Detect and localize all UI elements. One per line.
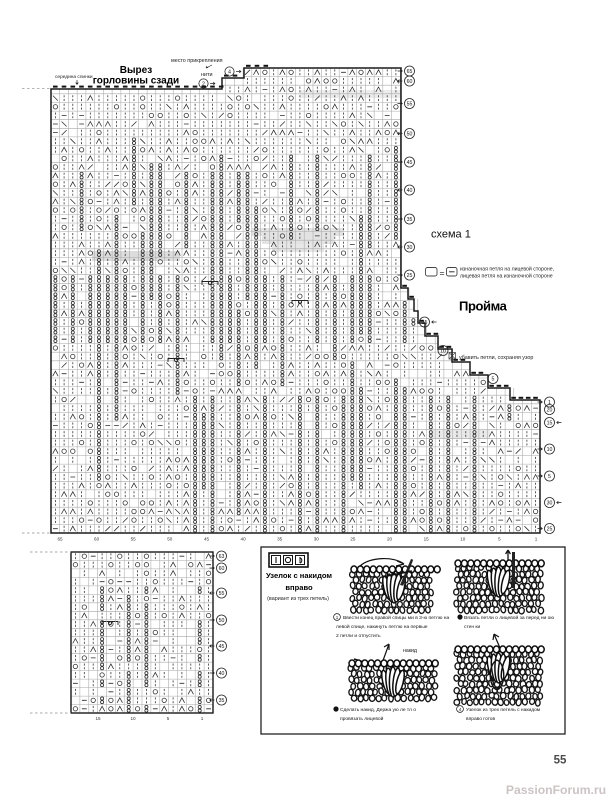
svg-text:60: 60 [219, 566, 225, 572]
svg-text:вправо готов: вправо готов [466, 717, 496, 722]
svg-text:15: 15 [547, 420, 553, 426]
svg-text:Вязать петли о лицевой за пер: Вязать петли о лицевой за перед ни ою [464, 614, 554, 621]
svg-text:2: 2 [202, 81, 205, 87]
svg-text:PassionForum.ru: PassionForum.ru [506, 783, 606, 797]
svg-text:20: 20 [387, 537, 393, 542]
svg-text:50: 50 [219, 618, 225, 624]
svg-text:схема 1: схема 1 [431, 229, 471, 241]
svg-text:10: 10 [440, 348, 446, 354]
svg-text:накид: накид [403, 648, 417, 654]
svg-text:60: 60 [407, 79, 413, 85]
svg-text:Сделать накид, Держа ую ле тл: Сделать накид, Держа ую ле тл о [340, 707, 416, 713]
svg-text:10: 10 [130, 716, 136, 721]
svg-text:изнаночная петля на лицевой ст: изнаночная петля на лицевой стороне, [460, 266, 554, 273]
svg-text:35: 35 [219, 698, 225, 704]
svg-text:лицевая петля на изнаночной ст: лицевая петля на изнаночной стороне [460, 273, 553, 280]
svg-text:45: 45 [204, 537, 210, 542]
svg-text:(вариант из трех петель): (вариант из трех петель) [267, 596, 329, 602]
svg-text:Узелок с накидом: Узелок с накидом [266, 571, 332, 580]
svg-text:10: 10 [460, 537, 466, 542]
svg-text:1: 1 [336, 615, 339, 620]
svg-text:30: 30 [547, 500, 553, 506]
svg-text:5: 5 [548, 474, 551, 480]
svg-text:25: 25 [350, 537, 356, 542]
svg-text:35: 35 [407, 217, 413, 223]
svg-text:15: 15 [95, 716, 101, 721]
svg-text:55: 55 [407, 101, 413, 107]
svg-text:место прикрепления: место прикрепления [171, 58, 223, 64]
svg-text:Узелок из трех петель с накидо: Узелок из трех петель с накидом [466, 707, 541, 713]
svg-text:40: 40 [241, 537, 247, 542]
svg-text:4: 4 [228, 69, 231, 75]
svg-text:1: 1 [535, 537, 538, 542]
svg-text:=: = [440, 268, 445, 278]
svg-text:55: 55 [554, 755, 567, 767]
svg-text:30: 30 [407, 245, 413, 251]
svg-text:25: 25 [547, 526, 553, 532]
svg-text:левой спице, накинуть петлю на: левой спице, накинуть петлю на первые [336, 623, 428, 630]
svg-text:5: 5 [498, 537, 501, 542]
svg-text:горловины сзади: горловины сзади [93, 76, 179, 87]
svg-text:стен ки: стен ки [464, 625, 481, 630]
svg-text:вправо: вправо [285, 583, 313, 592]
svg-text:40: 40 [219, 671, 225, 677]
svg-text:середина спинки: середина спинки [55, 75, 93, 80]
svg-text:15: 15 [424, 537, 430, 542]
svg-text:нити: нити [201, 72, 212, 78]
svg-text:Ввести конец правой спицы ми: Ввести конец правой спицы ми в 3-ю петлю… [343, 614, 449, 621]
svg-text:Пройма: Пройма [459, 299, 508, 314]
svg-text:провязать лицевой: провязать лицевой [340, 715, 384, 722]
svg-text:Вырез: Вырез [120, 65, 152, 76]
svg-text:10: 10 [547, 447, 553, 453]
svg-text:50: 50 [407, 131, 413, 137]
svg-text:40: 40 [407, 188, 413, 194]
svg-text:55: 55 [131, 537, 137, 542]
svg-text:2 петли и отпустить: 2 петли и отпустить [336, 633, 381, 639]
svg-text:1: 1 [201, 716, 204, 721]
svg-text:25: 25 [407, 273, 413, 279]
svg-text:15: 15 [422, 320, 428, 326]
svg-text:5: 5 [492, 376, 495, 382]
svg-text:65: 65 [407, 69, 413, 75]
svg-text:63: 63 [219, 554, 225, 560]
svg-text:20: 20 [547, 407, 553, 413]
svg-text:45: 45 [219, 644, 225, 650]
svg-text:30: 30 [314, 537, 320, 542]
svg-text:убавить петли, сохраняя узор: убавить петли, сохраняя узор [459, 355, 533, 361]
svg-text:5: 5 [167, 716, 170, 721]
svg-text:4: 4 [459, 707, 462, 712]
svg-text:45: 45 [407, 160, 413, 166]
svg-text:60: 60 [94, 537, 100, 542]
svg-text:50: 50 [167, 537, 173, 542]
svg-text:65: 65 [57, 537, 63, 542]
svg-text:55: 55 [219, 591, 225, 597]
svg-text:35: 35 [277, 537, 283, 542]
